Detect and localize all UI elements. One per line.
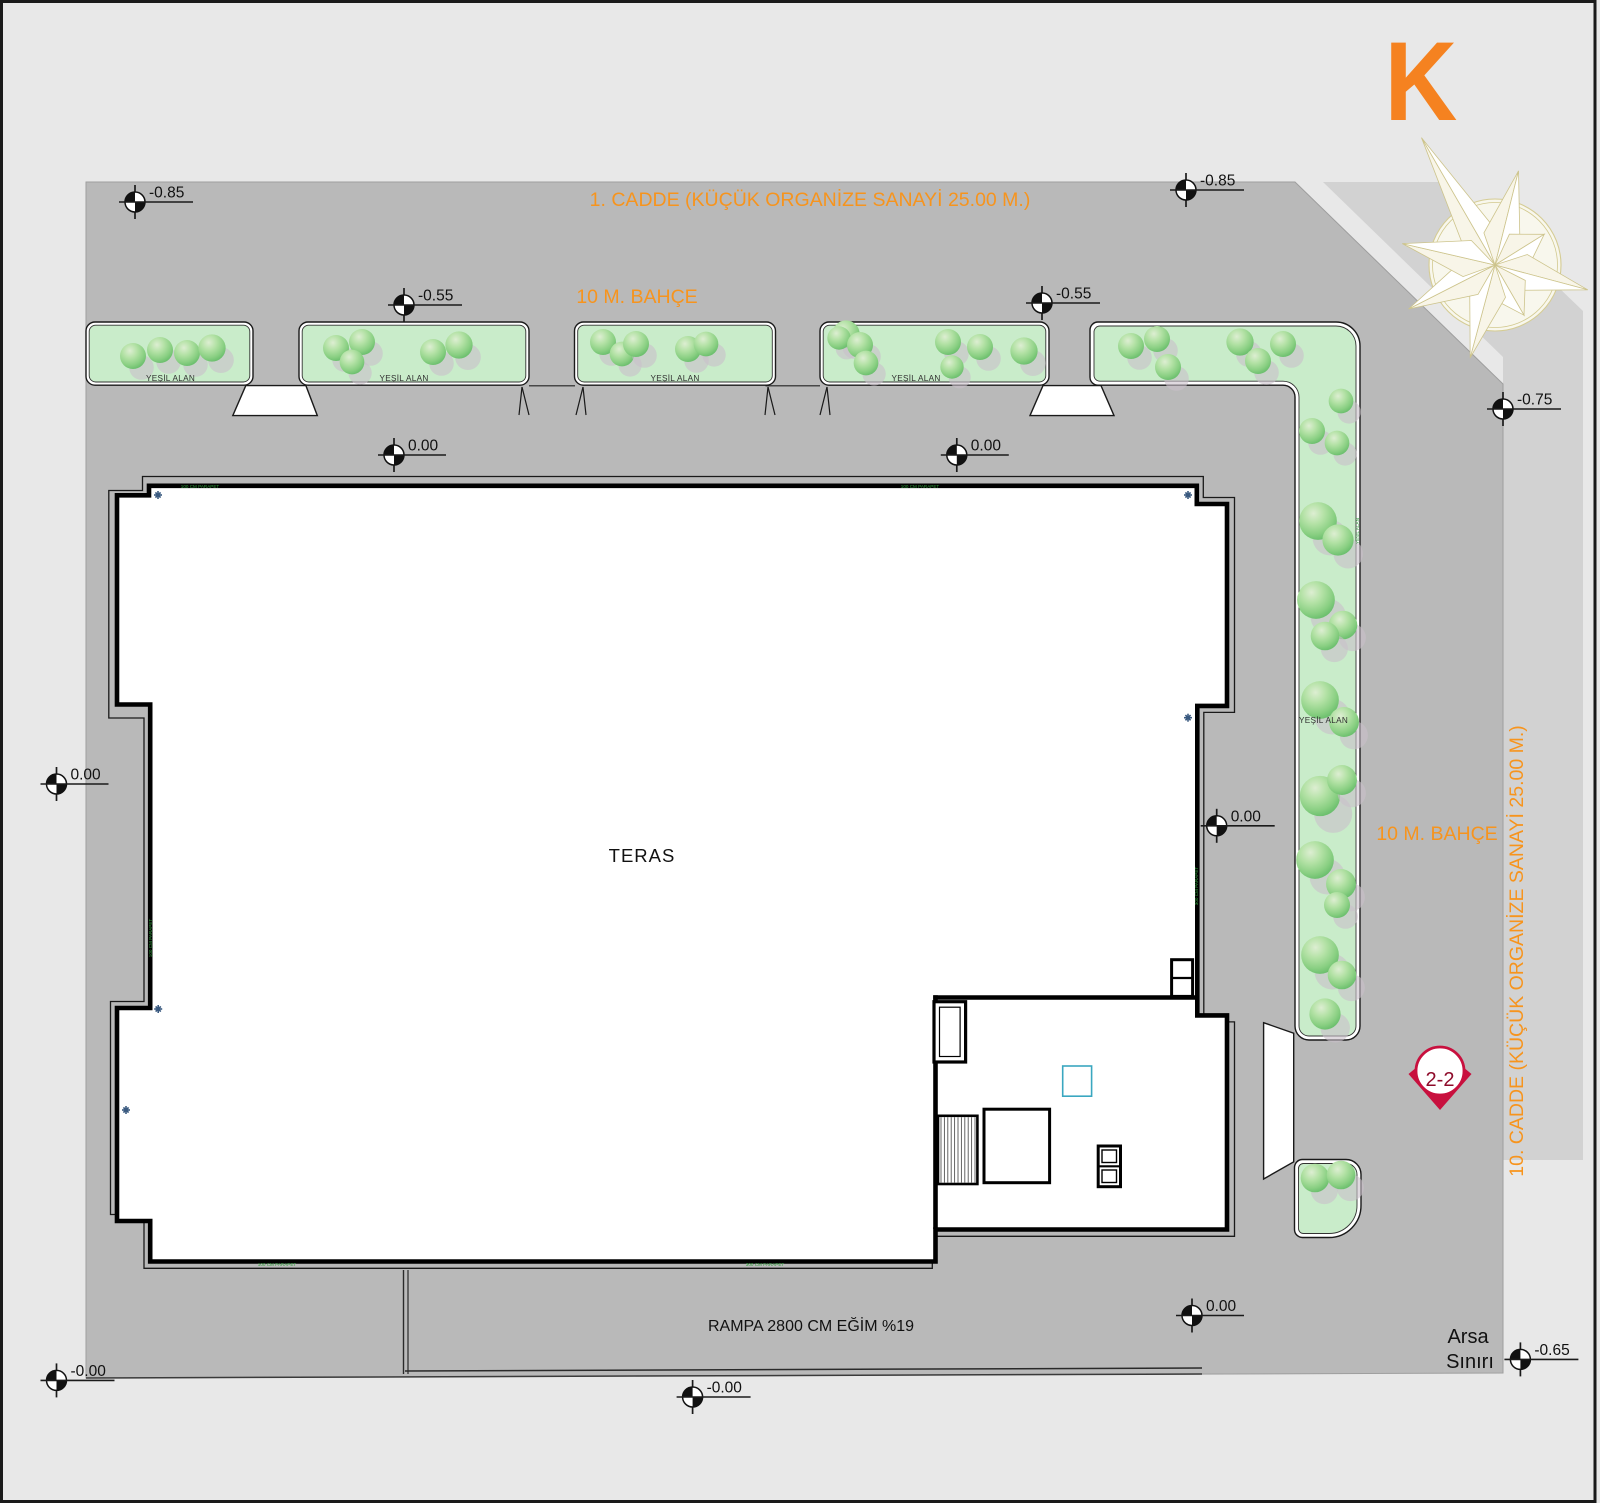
svg-text:YEŞİL ALAN: YEŞİL ALAN: [146, 373, 195, 383]
svg-text:0.00: 0.00: [1231, 808, 1262, 825]
svg-text:300 CM PARAPET: 300 CM PARAPET: [746, 1262, 785, 1267]
svg-text:YEŞİL ALAN: YEŞİL ALAN: [891, 373, 940, 383]
svg-text:100 CM PARAPET: 100 CM PARAPET: [258, 1262, 297, 1267]
svg-text:TERAS: TERAS: [609, 845, 676, 866]
svg-text:0.00: 0.00: [1206, 1298, 1237, 1315]
svg-text:10 M. BAHÇE: 10 M. BAHÇE: [576, 286, 697, 308]
svg-text:2-2: 2-2: [1426, 1069, 1455, 1091]
svg-text:100 CM PARAPET: 100 CM PARAPET: [148, 919, 153, 958]
svg-text:-0.75: -0.75: [1517, 392, 1552, 409]
svg-text:RAMPA 2800 CM EĞİM %19: RAMPA 2800 CM EĞİM %19: [708, 1316, 914, 1335]
svg-text:0.00: 0.00: [71, 767, 102, 784]
svg-text:10 M. BAHÇE: 10 M. BAHÇE: [1376, 823, 1497, 845]
svg-text:Sınırı: Sınırı: [1446, 1351, 1494, 1373]
svg-text:YEŞİL ALAN: YEŞİL ALAN: [650, 373, 699, 383]
svg-text:-0.55: -0.55: [1056, 286, 1091, 303]
svg-text:0.00: 0.00: [408, 438, 439, 455]
svg-text:-0.85: -0.85: [149, 185, 184, 202]
svg-text:YESIL ALAN: YESIL ALAN: [1355, 518, 1360, 544]
svg-text:-0.00: -0.00: [71, 1363, 107, 1380]
svg-text:Arsa: Arsa: [1447, 1326, 1489, 1348]
svg-text:-0.65: -0.65: [1534, 1342, 1569, 1359]
svg-text:1. CADDE (KÜÇÜK ORGANİZE SANAY: 1. CADDE (KÜÇÜK ORGANİZE SANAYİ 25.00 M.…: [590, 188, 1031, 211]
svg-text:YEŞİL ALAN: YEŞİL ALAN: [379, 373, 428, 383]
svg-text:100 CM PARAPET: 100 CM PARAPET: [181, 484, 220, 489]
svg-text:300 CM PARAPET: 300 CM PARAPET: [1194, 867, 1199, 906]
svg-text:YEŞİL ALAN: YEŞİL ALAN: [1299, 715, 1348, 725]
svg-text:K: K: [1385, 19, 1458, 144]
svg-text:100 CM PARAPET: 100 CM PARAPET: [901, 484, 940, 489]
svg-text:-0.55: -0.55: [418, 288, 453, 305]
svg-text:-0.85: -0.85: [1200, 173, 1235, 190]
svg-text:0.00: 0.00: [971, 438, 1002, 455]
svg-text:10. CADDE (KÜÇÜK ORGANİZE SANA: 10. CADDE (KÜÇÜK ORGANİZE SANAYİ 25.00 M…: [1505, 725, 1528, 1177]
svg-text:-0.00: -0.00: [707, 1380, 743, 1397]
